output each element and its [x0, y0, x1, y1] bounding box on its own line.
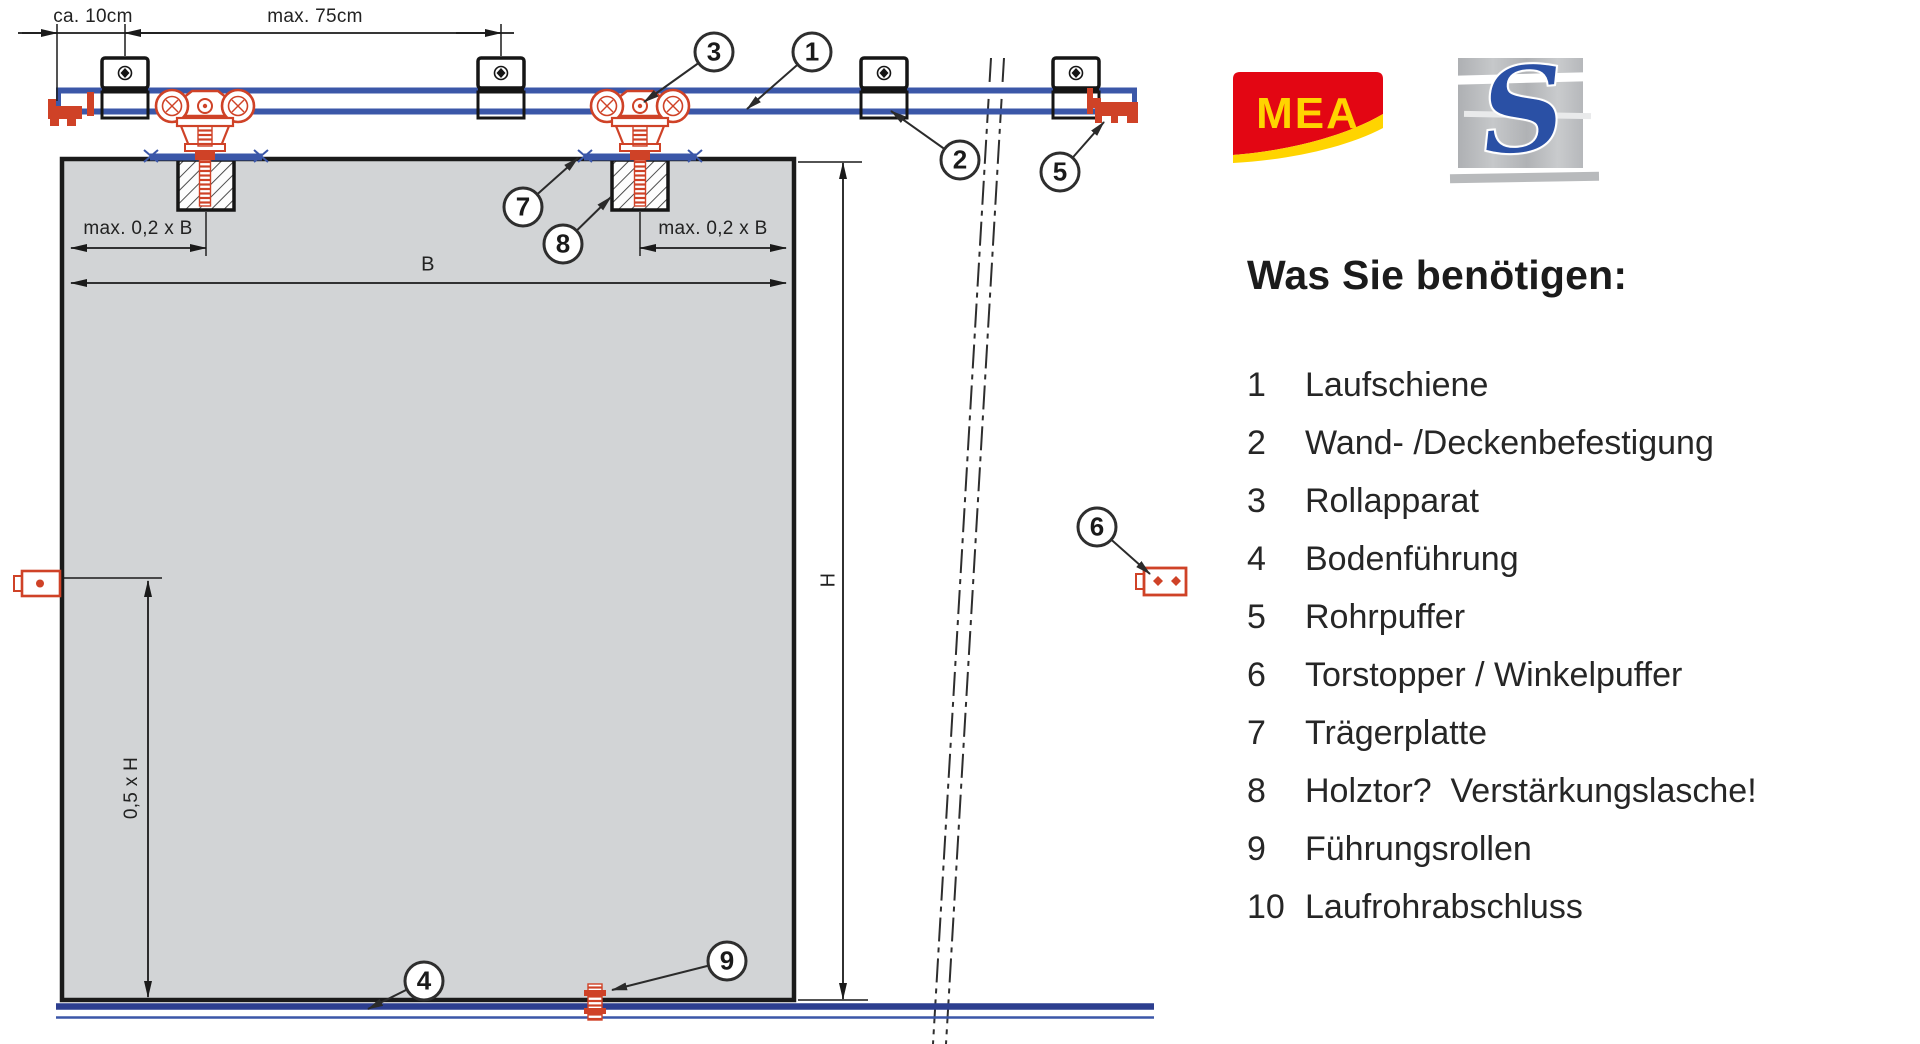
parts-list-item: 3 Rollapparat: [1247, 480, 1757, 523]
mea-logo: MEA: [1233, 72, 1383, 164]
callout-2-befestigung: 2: [940, 140, 981, 181]
dim-label-max75cm: max. 75cm: [267, 6, 363, 28]
parts-list-item: 5 Rohrpuffer: [1247, 596, 1757, 639]
part-label: Laufschiene: [1305, 364, 1488, 407]
part-number: 9: [1247, 828, 1305, 871]
callout-1-laufschiene: 1: [792, 32, 833, 73]
door-panel: [62, 159, 794, 1000]
part-number: 5: [1247, 596, 1305, 639]
part-number: 2: [1247, 422, 1305, 465]
part-number: 8: [1247, 770, 1305, 813]
callout-7-traegerplatte: 7: [503, 187, 544, 228]
part-label: Wand- /Deckenbefestigung: [1305, 422, 1714, 465]
mea-logo-graphic: MEA: [1233, 72, 1383, 164]
part-number: 1: [1247, 364, 1305, 407]
parts-list-item: 6 Torstopper / Winkelpuffer: [1247, 654, 1757, 697]
parts-list: 1 Laufschiene 2 Wand- /Deckenbefestigung…: [1247, 364, 1757, 929]
part-number: 7: [1247, 712, 1305, 755]
dim-label-02b-left: max. 0,2 x B: [83, 218, 192, 240]
callout-8-verstaerkung: 8: [543, 224, 584, 265]
s-logo-letter: S: [1474, 38, 1571, 184]
parts-list-item: 8 Holztor? Verstärkungslasche!: [1247, 770, 1757, 813]
parts-list-item: 2 Wand- /Deckenbefestigung: [1247, 422, 1757, 465]
sliding-door-installation-diagram-page: ca. 10cm max. 75cm max. 0,2 x B max. 0,2…: [0, 0, 1920, 1044]
part-number: 10: [1247, 886, 1305, 929]
parts-list-item: 9 Führungsrollen: [1247, 828, 1757, 871]
wall-centerline: [933, 58, 1004, 1044]
callout-3-rollapparat: 3: [694, 32, 735, 73]
part-number: 4: [1247, 538, 1305, 581]
callout-6-torstopper: 6: [1077, 507, 1118, 548]
s-logo: S: [1450, 48, 1595, 190]
callout-5-rohrpuffer: 5: [1040, 152, 1081, 193]
part-number: 3: [1247, 480, 1305, 523]
part-label: Holztor? Verstärkungslasche!: [1305, 770, 1757, 813]
callout-9-fuehrungsrollen: 9: [707, 941, 748, 982]
dim-label-ca10cm: ca. 10cm: [53, 6, 133, 28]
part-label: Rollapparat: [1305, 480, 1479, 523]
part-label: Bodenführung: [1305, 538, 1519, 581]
part-number: 6: [1247, 654, 1305, 697]
part-label: Rohrpuffer: [1305, 596, 1465, 639]
dim-label-b: B: [421, 254, 435, 277]
callout-4-bodenfuehrung: 4: [404, 961, 445, 1002]
dim-label-02b-right: max. 0,2 x B: [658, 218, 767, 240]
part-label: Trägerplatte: [1305, 712, 1487, 755]
dim-label-05h: 0,5 x H: [121, 757, 143, 819]
parts-list-item: 7 Trägerplatte: [1247, 712, 1757, 755]
parts-list-item: 4 Bodenführung: [1247, 538, 1757, 581]
parts-list-item: 10 Laufrohrabschluss: [1247, 886, 1757, 929]
parts-list-heading: Was Sie benötigen:: [1247, 252, 1627, 299]
part-label: Torstopper / Winkelpuffer: [1305, 654, 1682, 697]
door-stopper-right: [1136, 568, 1186, 595]
door-stopper-left: [14, 571, 60, 596]
mea-logo-text: MEA: [1256, 89, 1360, 138]
track-end-cap: [48, 92, 94, 126]
part-label: Laufrohrabschluss: [1305, 886, 1583, 929]
parts-list-item: 1 Laufschiene: [1247, 364, 1757, 407]
dim-label-h: H: [818, 573, 841, 588]
part-label: Führungsrollen: [1305, 828, 1532, 871]
